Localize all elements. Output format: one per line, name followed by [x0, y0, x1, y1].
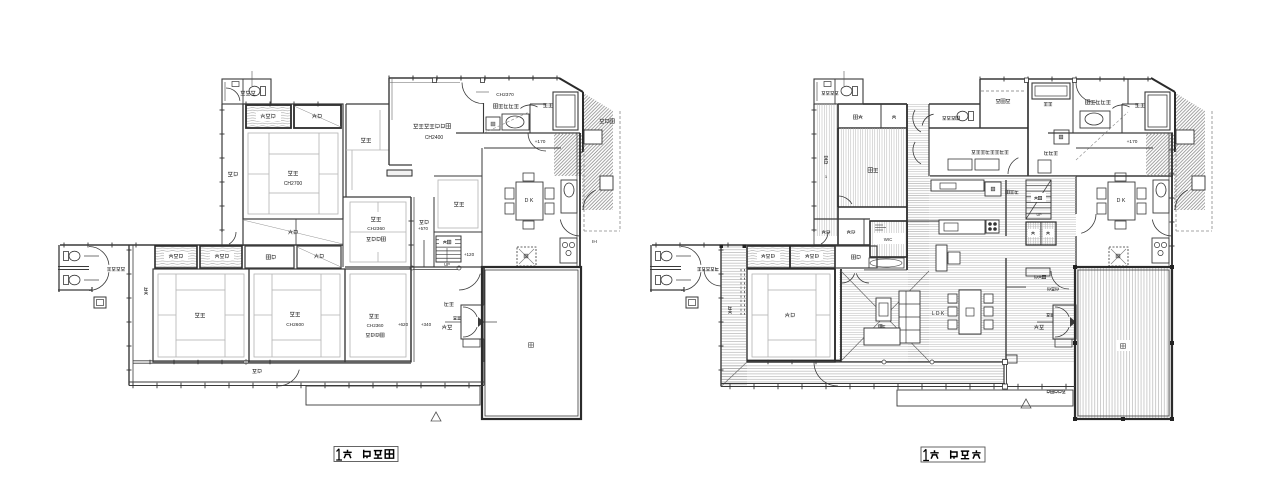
svg-text:+570: +570: [418, 226, 428, 231]
svg-text:CH2360: CH2360: [367, 323, 384, 328]
svg-text:D K: D K: [525, 198, 534, 204]
svg-text:+170: +170: [1127, 139, 1138, 145]
svg-text:CH2600: CH2600: [286, 322, 304, 328]
svg-text:CH2360: CH2360: [367, 226, 385, 232]
svg-text:+120: +120: [464, 252, 475, 257]
svg-text:CH2700: CH2700: [284, 181, 303, 187]
svg-text:IH: IH: [592, 239, 597, 245]
svg-text:+340: +340: [421, 322, 432, 327]
svg-text:UP: UP: [1037, 213, 1043, 217]
svg-text:UP: UP: [444, 262, 450, 267]
svg-text:D K: D K: [1117, 198, 1126, 204]
svg-text:WIC: WIC: [884, 237, 893, 242]
svg-text:CH2370: CH2370: [496, 92, 514, 98]
svg-text:+170: +170: [535, 139, 546, 145]
svg-text:+620: +620: [398, 322, 409, 327]
svg-text:CH2400: CH2400: [425, 135, 444, 141]
svg-text:L D K: L D K: [932, 311, 945, 317]
